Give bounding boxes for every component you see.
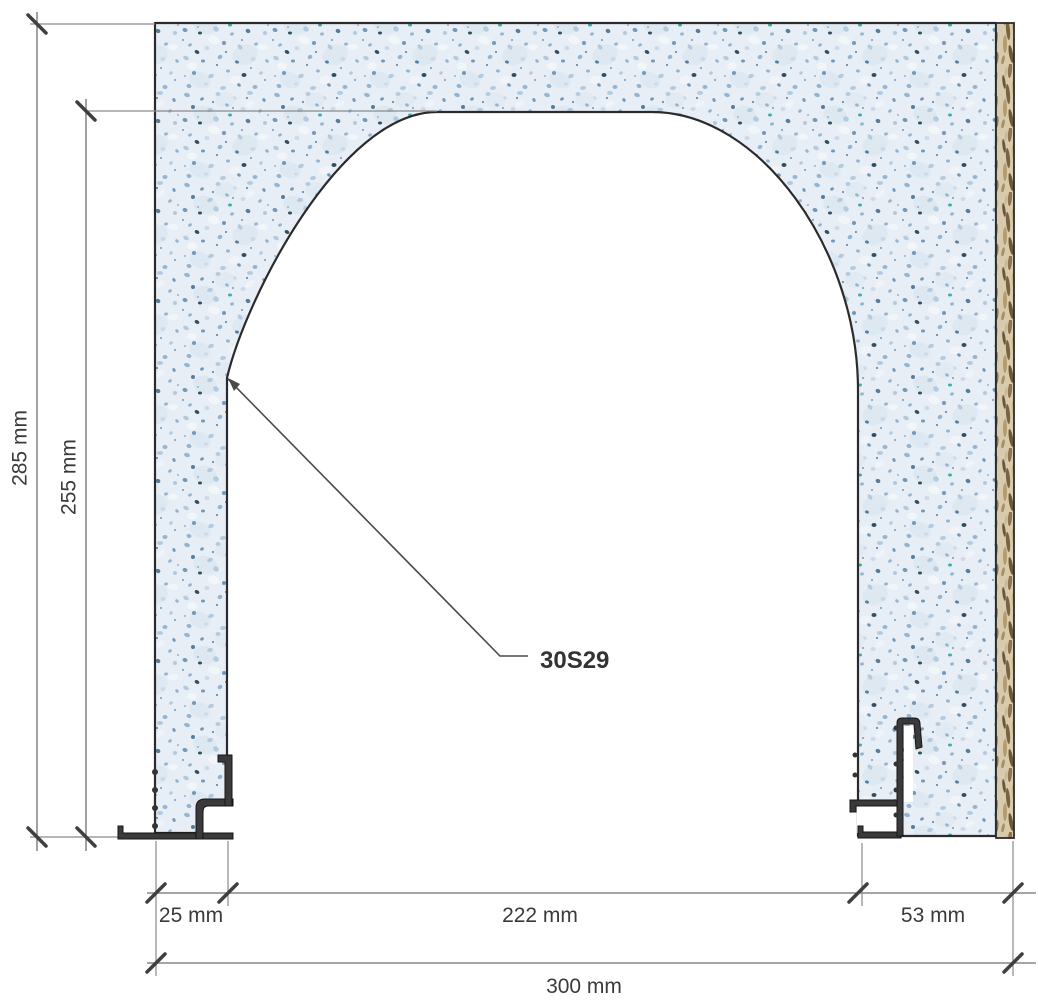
dim-label-right-jamb: 53 mm xyxy=(901,904,965,927)
right-jamb-slot xyxy=(904,726,913,802)
dim-label-left-jamb: 25 mm xyxy=(159,904,223,927)
dim-label-overall-width: 300 mm xyxy=(546,975,622,998)
dim-label-opening-width: 222 mm xyxy=(502,904,578,927)
dim-label-overall-height: 285 mm xyxy=(9,410,32,486)
panel-body xyxy=(155,23,996,836)
section-drawing: 285 mm 255 mm 25 mm 222 mm 53 mm 300 mm … xyxy=(0,0,1038,1003)
osb-strip xyxy=(996,23,1014,838)
drawing-canvas: 285 mm 255 mm 25 mm 222 mm 53 mm 300 mm … xyxy=(0,0,1038,1003)
leader-line xyxy=(228,379,528,656)
dim-label-opening-height: 255 mm xyxy=(58,439,81,515)
product-label: 30S29 xyxy=(540,647,609,674)
left-jamb-notch xyxy=(203,803,229,834)
extension-lines-bottom xyxy=(156,841,1013,976)
